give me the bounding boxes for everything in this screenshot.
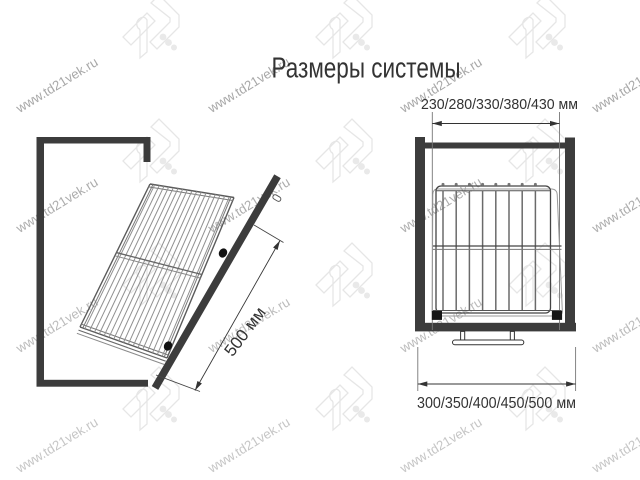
svg-text:230/280/330/380/430 мм: 230/280/330/380/430 мм [421,96,578,113]
svg-text:Размеры системы: Размеры системы [272,53,461,85]
svg-text:300/350/400/450/500 мм: 300/350/400/450/500 мм [417,395,576,412]
